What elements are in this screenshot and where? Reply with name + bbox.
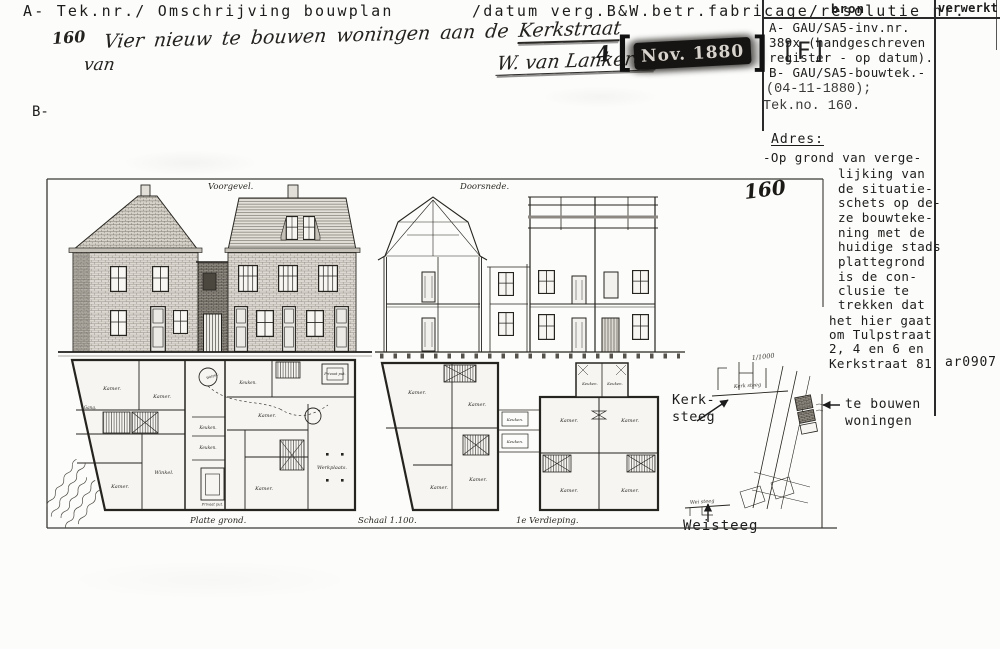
bron-column-header: bron [762, 2, 934, 16]
stamp-bracket-left: [ [612, 33, 636, 73]
handwritten-van: van [83, 55, 117, 75]
adres-line: -Op grond van verge- [763, 151, 922, 165]
room-label: Keuken. [198, 425, 216, 430]
chimney [288, 185, 298, 198]
stamp-day: 4 [594, 40, 612, 67]
staircase [103, 412, 130, 433]
verdieping-label: 1e Verdieping. [516, 516, 579, 526]
bron-line-alt: Tek.no. 160. [763, 99, 860, 115]
room-label: Kamer. [254, 486, 273, 492]
room-label: Keuken. [606, 381, 623, 386]
room-label: Keuken. [238, 380, 256, 385]
front-elevation: Voorgevel. [58, 182, 372, 356]
adres-line: huidige stads [838, 240, 941, 254]
reference-code: ar0907 [945, 356, 997, 371]
room-label: Kamer. [620, 418, 639, 424]
stamp-date-text: Nov. 1880 [633, 36, 751, 69]
facade-shadow [73, 253, 90, 353]
room-label: Werkplaats. [317, 465, 347, 471]
chimney [141, 185, 150, 196]
middle-window [203, 273, 216, 290]
doorsnede-label: Doorsnede. [459, 182, 509, 192]
verwerkt-column-header: verwerkt [938, 2, 998, 16]
section-door [572, 276, 586, 304]
handwritten-number: 160 [51, 27, 86, 48]
room-label: Keuken. [198, 445, 216, 450]
room-label: Kamer. [467, 402, 486, 408]
room-label: Kamer. [102, 386, 121, 392]
roof-truss [385, 200, 480, 256]
wei-steeg-handwritten: Wei steeg [690, 498, 715, 506]
kerk-steeg-handwritten: Kerk steeg [733, 382, 762, 390]
adres-line: schets op de- [838, 196, 941, 210]
house-left-facade [73, 253, 198, 353]
room-label: Kamer. [559, 418, 578, 424]
margin-label-b: B- [32, 104, 49, 120]
parcel-block [771, 477, 794, 499]
room-label: Kamer. [257, 413, 276, 419]
schaal-label: Schaal 1.100. [358, 516, 417, 526]
drawing-sheet-number: 160 [743, 175, 787, 204]
bron-line-alt: (04-11-1880); [766, 82, 871, 98]
parcel-block [740, 486, 765, 508]
architectural-drawing: 160 Voorgevel. [40, 172, 840, 540]
cross-section: Doorsnede. [375, 182, 685, 356]
stamp-f-mark: [F] [781, 37, 827, 65]
date-stamp: 4 [ Nov. 1880 ] [F] [596, 34, 827, 72]
site-plan: 1/1000 Kerk steeg Wei steeg [685, 352, 823, 516]
room-label: Gang. [84, 405, 97, 410]
te-bouwen-annotation-line2: woningen [845, 415, 912, 430]
adres-line: plattegrond [838, 255, 925, 269]
plattegrond-label: Platte grond. [189, 516, 246, 526]
cornice [225, 248, 360, 253]
room-label: Kamer. [620, 488, 639, 494]
adres-line: Kerkstraat 81 [829, 357, 932, 371]
section-door [572, 318, 586, 352]
room-label: Kamer. [407, 390, 426, 396]
handwritten-title: Vier nieuw te bouwen woningen aan de Ker… [103, 17, 622, 53]
interior-door [422, 318, 435, 351]
first-floor-plan: Kamer. Kamer. Kamer. Kamer. Keuken. Keuk… [358, 363, 658, 526]
cornice [69, 248, 202, 253]
interior-door [422, 272, 435, 302]
adres-heading: Adres: [771, 133, 824, 148]
scan-smudge [60, 560, 360, 600]
adres-line: 2, 4 en 6 en [829, 342, 924, 356]
stamp-bracket-right: ] [749, 33, 773, 73]
scanned-archive-card: A- Tek.nr./ Omschrijving bouwplan /datum… [0, 0, 1000, 649]
staircase [276, 362, 300, 378]
handwritten-title-text: Vier nieuw te bouwen woningen aan de [103, 20, 520, 53]
header-left: A- Tek.nr./ Omschrijving bouwplan [23, 3, 394, 20]
site-buildings [690, 507, 713, 516]
room-label: Kamer. [559, 488, 578, 494]
hipped-roof [73, 196, 198, 250]
adres-line: trekken dat [838, 298, 925, 312]
room-label: Keuken. [506, 417, 523, 422]
new-houses-block [795, 395, 818, 434]
room-label: Kamer. [429, 485, 448, 491]
adres-line: ze bouwteke- [838, 211, 933, 225]
plank-door-section [602, 318, 619, 352]
scan-smudge [540, 86, 660, 108]
frame-beams [528, 197, 658, 228]
room-label: Privaat put. [201, 503, 223, 507]
room-label: Keuken. [581, 381, 598, 386]
kerksteeg-arrow [697, 400, 728, 421]
ground-floor-plan: Kamer. Kamer. Gang. Kamer. Winkel. Keuke… [72, 360, 355, 526]
room-label: Kamer. [468, 477, 487, 483]
column-header-rule [762, 17, 1000, 19]
room-label: Kamer. [152, 394, 171, 400]
voorgevel-label: Voorgevel. [208, 182, 253, 192]
room-label: Keuken. [506, 439, 523, 444]
section-door [604, 272, 618, 298]
plank-door [204, 314, 222, 352]
room-label: Winkel. [154, 470, 173, 476]
gambrel-roof [378, 197, 487, 260]
adres-line: lijking van [838, 167, 925, 181]
room-label: Privaat put. [323, 372, 345, 376]
room-label: Kamer. [110, 484, 129, 490]
site-scale-label: 1/1000 [751, 352, 775, 362]
te-bouwen-annotation-line1: te bouwen [845, 398, 921, 413]
